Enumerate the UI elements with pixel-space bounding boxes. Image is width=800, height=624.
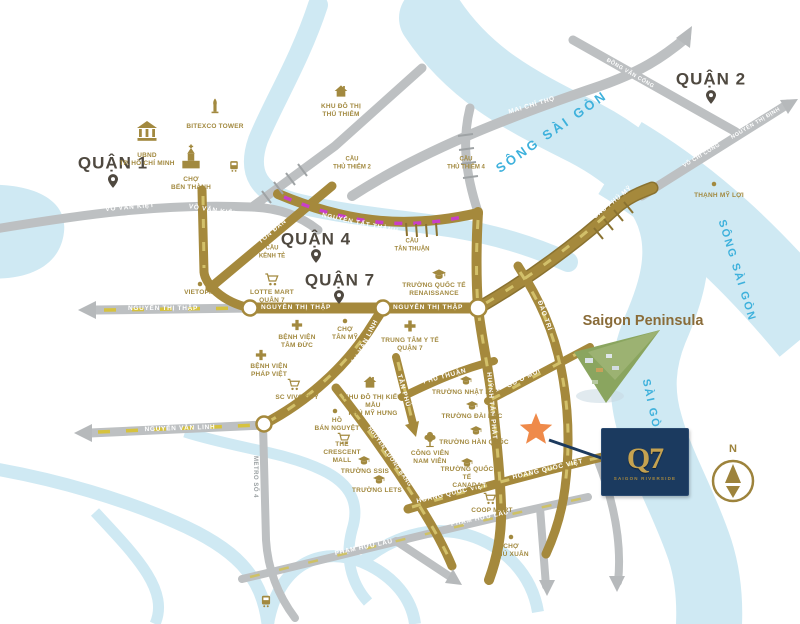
landmark-label-coop-mart: COOP MART bbox=[465, 507, 520, 515]
district-label-quan-7: QUẬN 7 bbox=[305, 269, 375, 290]
school-icon bbox=[470, 425, 483, 438]
landmark-label-thu-thiem: KHU ĐÔ THỊ THỦ THIÊM bbox=[314, 103, 369, 119]
city-location-map: QUẬN 1 QUẬN 2 QUẬN 4 QUẬN 7 VÕ VĂN KIỆT … bbox=[0, 0, 800, 624]
landmark-label-ben-thanh: CHỢ BẾN THÀNH bbox=[166, 176, 216, 192]
district-label-quan-4: QUẬN 4 bbox=[281, 228, 351, 249]
road-label-metro-4: METRO SỐ 4 bbox=[250, 456, 258, 498]
school-icon bbox=[466, 400, 479, 413]
landmark-label-tam-duc: BỆNH VIỆN TÂM ĐỨC bbox=[272, 334, 322, 350]
shopping-cart-icon bbox=[287, 378, 302, 393]
landmark-label-crescent-mall: THE CRESCENT MALL bbox=[315, 441, 370, 465]
school-icon bbox=[432, 268, 447, 283]
thu-thiem-house-icon bbox=[333, 83, 349, 99]
landmark-label-bitexco: BITEXCO TOWER bbox=[185, 123, 245, 131]
shopping-cart-icon bbox=[483, 492, 498, 507]
landmark-label-dai-bac: TRƯỜNG ĐÀI BẮC bbox=[435, 413, 510, 421]
house-icon bbox=[362, 374, 378, 390]
shopping-cart-icon bbox=[264, 272, 280, 288]
bridge-label-tan-thuan: CẦU TÂN THUẬN bbox=[395, 239, 430, 254]
landmark-label-lotte-mart: LOTTE MART QUẬN 7 bbox=[245, 289, 300, 305]
road-label-nguyen-thi-thap: NGUYỄN THỊ THẬP bbox=[261, 304, 331, 312]
government-building-icon bbox=[135, 119, 159, 143]
landmark-label-vietopia: VIETOPIA bbox=[175, 289, 225, 297]
project-star-icon bbox=[520, 413, 552, 444]
district-pin-icon bbox=[106, 174, 121, 189]
place-dot-icon bbox=[710, 180, 719, 189]
metro-station-icon bbox=[259, 594, 273, 608]
landmark-label-ho-ban-nguyet: HỒ BÁN NGUYỆT bbox=[315, 417, 360, 433]
landmark-label-phu-xuan: CHỢ PHÚ XUÂN bbox=[489, 543, 534, 559]
place-dot-icon bbox=[341, 317, 350, 326]
hospital-cross-icon bbox=[403, 319, 417, 333]
district-label-quan-2: QUẬN 2 bbox=[676, 68, 746, 89]
park-tree-icon bbox=[421, 430, 439, 448]
hospital-cross-icon bbox=[255, 349, 268, 362]
landmark-label-vivocity: SC VIVOCITY bbox=[270, 394, 325, 402]
bridge-label-thu-thiem-2: CẦU THỦ THIÊM 2 bbox=[333, 157, 371, 172]
landmark-label-renaissance: TRƯỜNG QUỐC TẾ RENAISSANCE bbox=[399, 282, 469, 298]
compass-north-label: N bbox=[729, 443, 737, 455]
landmark-label-trung-tam-y-te: TRUNG TÂM Y TẾ QUẬN 7 bbox=[380, 337, 440, 353]
place-dot-icon bbox=[196, 280, 205, 289]
project-logo-tagline: SAIGON RIVERSIDE bbox=[614, 476, 676, 481]
bridge-label-thu-thiem-4: CẦU THỦ THIÊM 4 bbox=[447, 157, 485, 172]
landmark-label-ssis: TRƯỜNG SSIS bbox=[338, 468, 393, 476]
landmark-label-thanh-my-loi: THẠNH MỸ LỢI bbox=[684, 192, 754, 200]
landmark-label-phap-viet: BỆNH VIỆN PHÁP VIỆT bbox=[242, 363, 297, 379]
hospital-cross-icon bbox=[291, 319, 304, 332]
metro-station-icon bbox=[228, 160, 241, 173]
saigon-peninsula-label: Saigon Peninsula bbox=[583, 312, 704, 330]
district-pin-icon bbox=[332, 290, 347, 305]
pointer-line bbox=[549, 440, 604, 459]
district-pin-icon bbox=[309, 249, 324, 264]
landmark-label-phu-my-hung: KHU ĐÔ THỊ KIỂU MẪU PHÚ MỸ HƯNG bbox=[336, 394, 411, 418]
landmark-label-nhat-ban: TRƯỜNG NHẬT BẢN bbox=[429, 389, 504, 397]
landmark-label-canada: TRƯỜNG QUỐC TẾ CANADA bbox=[437, 466, 497, 490]
project-logo-text: Q7 bbox=[627, 444, 663, 474]
landmark-label-lets: TRƯỜNG LETS bbox=[350, 487, 405, 495]
compass-icon bbox=[713, 461, 753, 501]
landmark-label-cho-tan-my: CHỢ TÂN MỸ bbox=[325, 326, 365, 342]
road-label-nguyen-thi-thap: NGUYỄN THỊ THẬP bbox=[393, 304, 463, 312]
place-dot-icon bbox=[507, 533, 516, 542]
landmark-label-ubnd: UBND TP. HỒ CHÍ MINH bbox=[112, 152, 182, 168]
project-logo-badge: Q7 SAIGON RIVERSIDE bbox=[601, 428, 689, 496]
district-pin-icon bbox=[704, 90, 719, 105]
bitexco-tower-icon bbox=[208, 91, 223, 121]
landmark-label-han-quoc: TRƯỜNG HÀN QUỐC bbox=[439, 439, 509, 447]
bridge-label-kenh-te: CẦU KÊNH TẺ bbox=[259, 246, 285, 261]
road-label-nguyen-thi-thap: NGUYỄN THỊ THẬP bbox=[128, 305, 198, 313]
landmark-label-nam-vien: CÔNG VIÊN NAM VIÊN bbox=[404, 450, 456, 466]
